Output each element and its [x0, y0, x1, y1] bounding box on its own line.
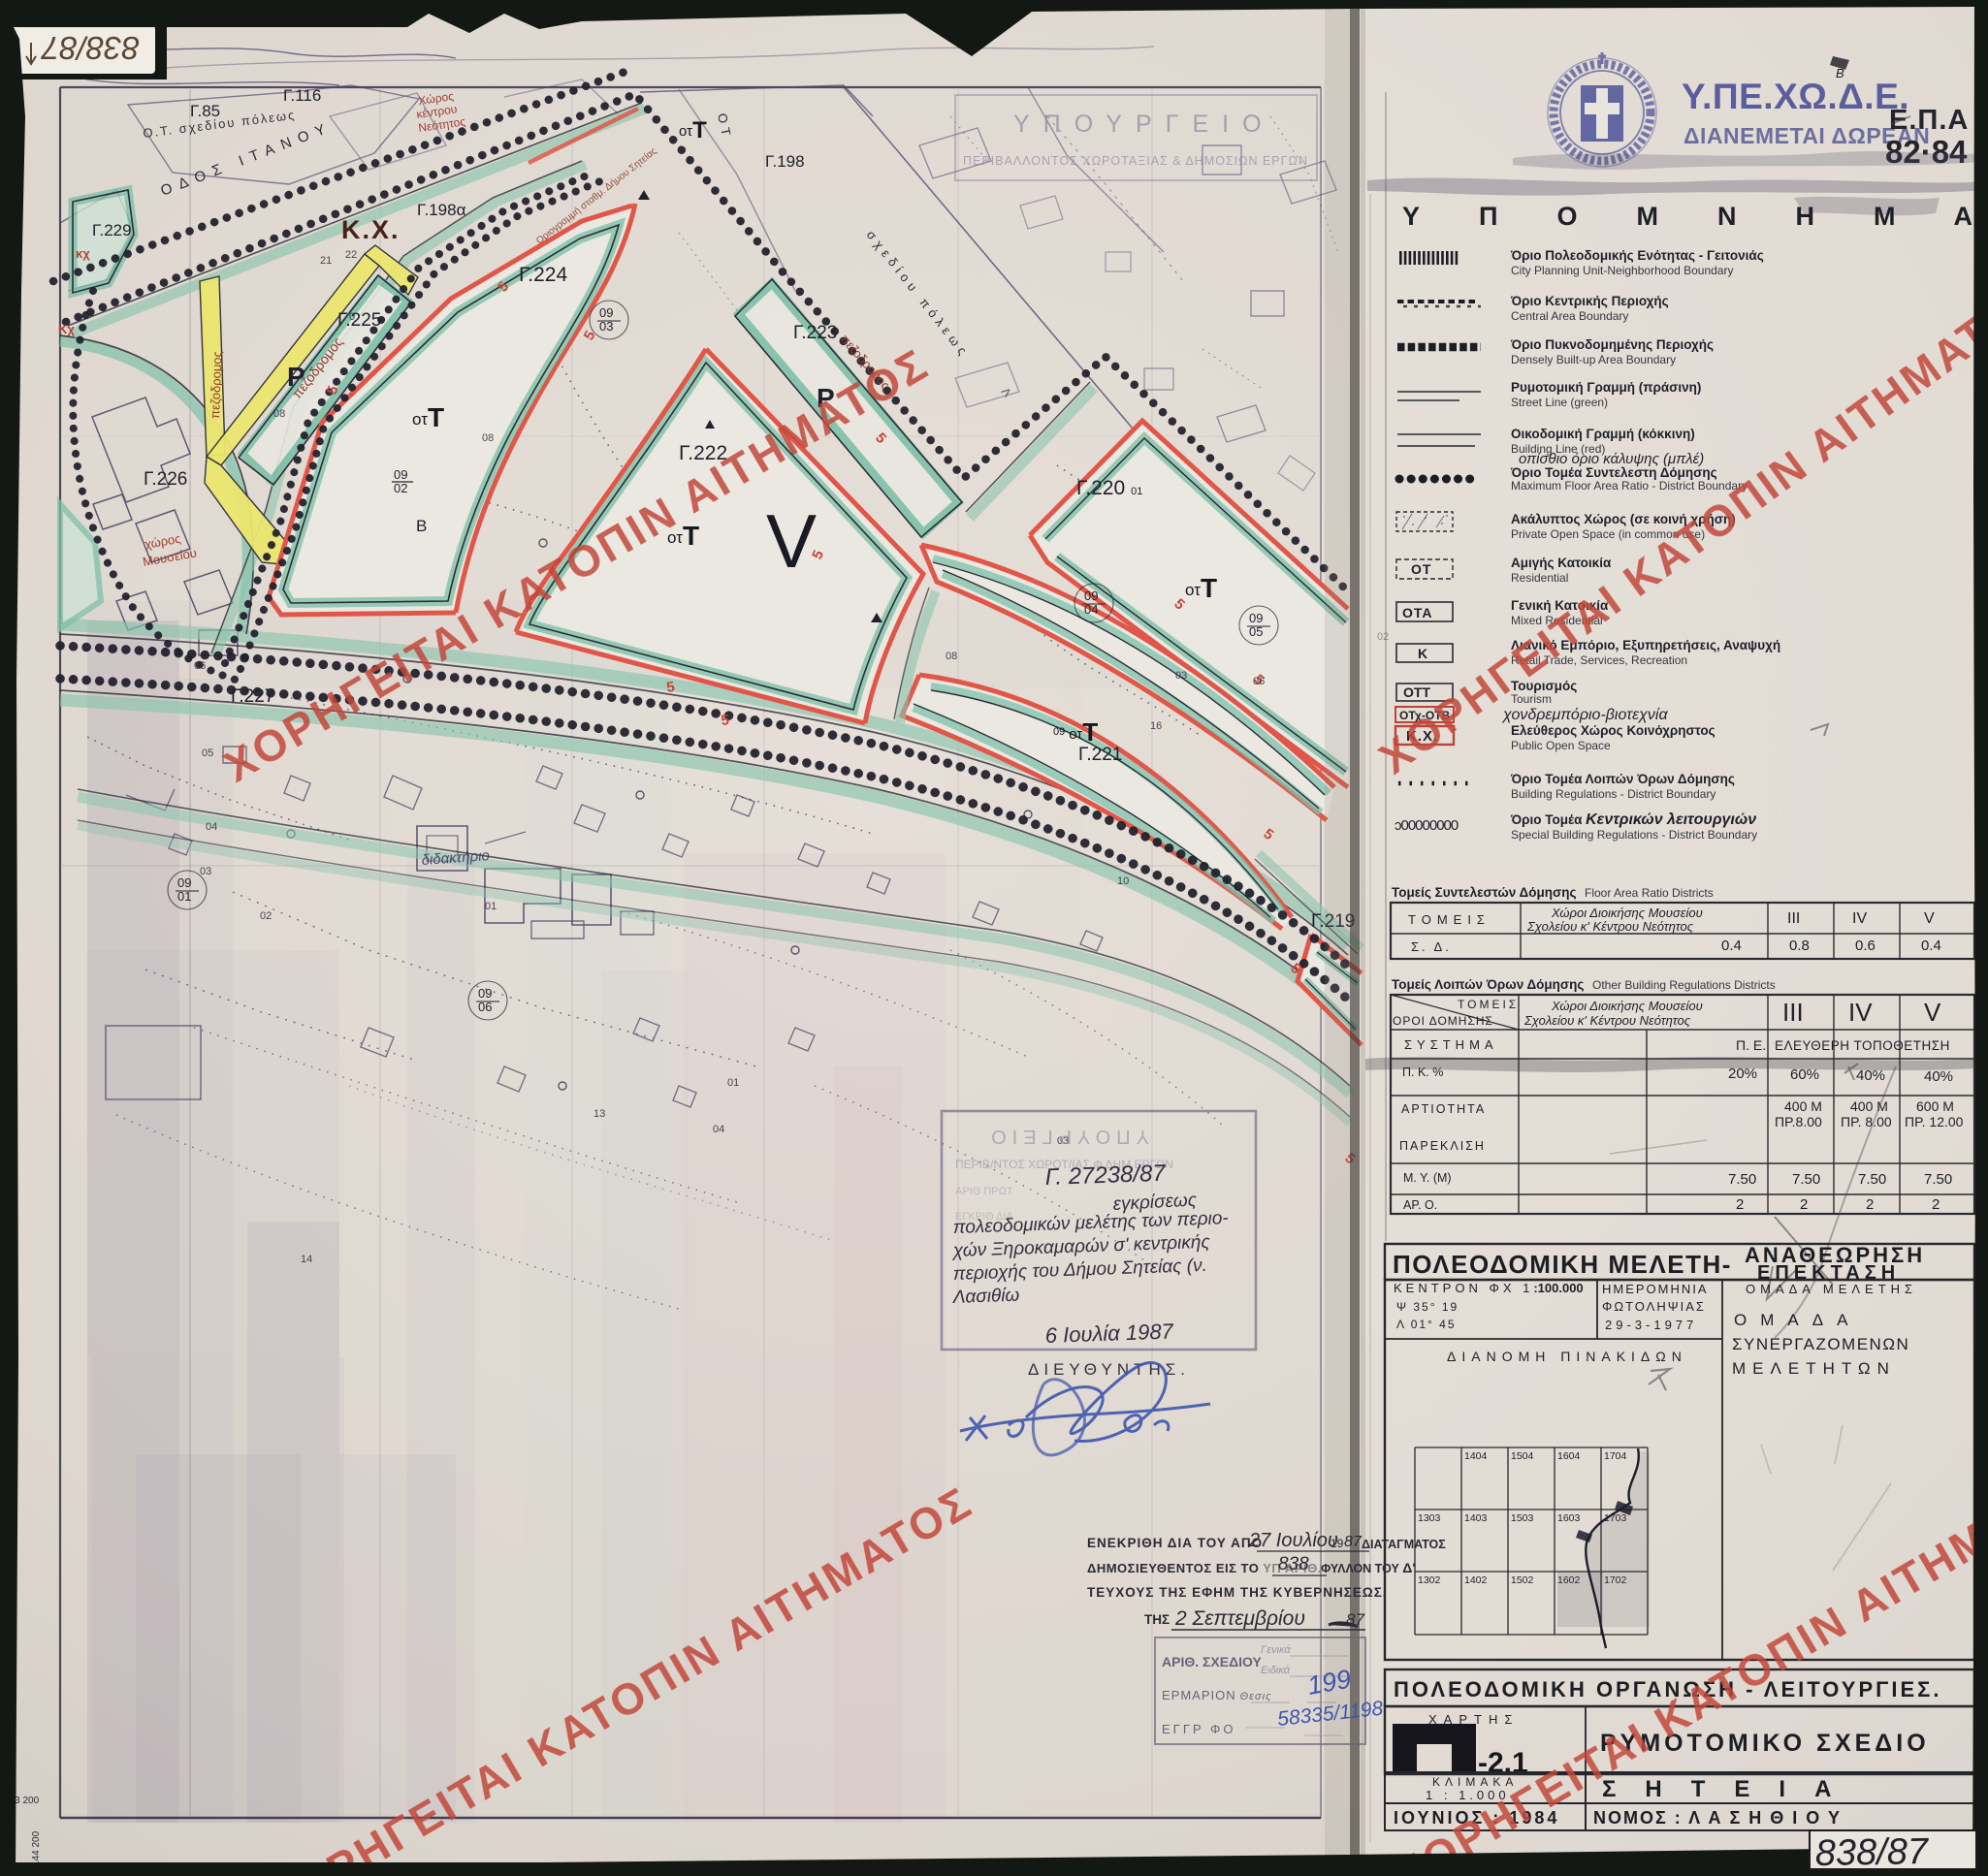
- svg-text:27 Ιουλίου: 27 Ιουλίου: [1248, 1530, 1338, 1551]
- svg-text:Υ.ΠΕ.ΧΩ.Δ.Ε.: Υ.ΠΕ.ΧΩ.Δ.Ε.: [1682, 77, 1909, 116]
- svg-text:87: 87: [1344, 1534, 1363, 1550]
- svg-text:κχ: κχ: [76, 246, 90, 261]
- svg-text:ΔΙΑΝΟΜΗ ΠΙΝΑΚΙΔΩΝ: ΔΙΑΝΟΜΗ ΠΙΝΑΚΙΔΩΝ: [1447, 1349, 1687, 1364]
- svg-text:Γ.198α: Γ.198α: [417, 201, 466, 219]
- svg-text:ΑΡ. Ο.: ΑΡ. Ο.: [1403, 1198, 1437, 1212]
- svg-text:ΣΗΤΕΙΑ: ΣΗΤΕΙΑ: [1602, 1776, 1860, 1802]
- svg-text:ΚΛΙΜΑΚΑ: ΚΛΙΜΑΚΑ: [1432, 1775, 1518, 1789]
- svg-text:0.4: 0.4: [1921, 938, 1941, 954]
- svg-text:2: 2: [1932, 1196, 1940, 1213]
- svg-text:ΕΝΕΚΡΙΘΗ ΔΙΑ ΤΟΥ ΑΠΟ: ΕΝΕΚΡΙΘΗ ΔΙΑ ΤΟΥ ΑΠΟ: [1087, 1536, 1263, 1550]
- svg-text:1704: 1704: [1604, 1450, 1627, 1462]
- svg-text:Σ. Δ.: Σ. Δ.: [1411, 939, 1452, 954]
- svg-text:Building Regulations - Distric: Building Regulations - District Boundary: [1511, 787, 1715, 801]
- svg-text:Οικοδομική Γραμμή (κόκκινη): Οικοδομική Γραμμή (κόκκινη): [1511, 427, 1695, 441]
- svg-text:ΗΜΕΡΟΜΗΝΙΑ: ΗΜΕΡΟΜΗΝΙΑ: [1602, 1282, 1709, 1296]
- svg-text:29-3-1977: 29-3-1977: [1605, 1318, 1697, 1332]
- svg-text:Κ.Χ.: Κ.Χ.: [341, 215, 401, 244]
- svg-text:Τομείς Συντελεστών Δόμησης: Τομείς Συντελεστών Δόμησης: [1392, 885, 1577, 900]
- svg-text:Public Open Space: Public Open Space: [1511, 739, 1611, 752]
- svg-text:ΟΜΑΔΑ: ΟΜΑΔΑ: [1734, 1311, 1861, 1329]
- svg-text:Other Building Regulations Dis: Other Building Regulations Districts: [1592, 978, 1776, 992]
- svg-text:ΦΥΛΛΟΝ ΤΟΥ Δ': ΦΥΛΛΟΝ ΤΟΥ Δ': [1321, 1560, 1416, 1575]
- svg-text:21: 21: [320, 255, 332, 267]
- svg-text:Γ.229: Γ.229: [92, 221, 132, 239]
- svg-text:6 Ιουλία 1987: 6 Ιουλία 1987: [1044, 1319, 1174, 1348]
- svg-text:Γ.223: Γ.223: [793, 323, 837, 343]
- svg-text:ΠΑΡΕΚΛΙΣΗ: ΠΑΡΕΚΛΙΣΗ: [1399, 1139, 1486, 1153]
- svg-text:400 Μ: 400 Μ: [1784, 1098, 1822, 1114]
- svg-text:2: 2: [1736, 1196, 1744, 1213]
- svg-text:1604: 1604: [1557, 1450, 1581, 1462]
- svg-text:Street Line (green): Street Line (green): [1511, 396, 1608, 409]
- svg-text:Β: Β: [1836, 66, 1844, 80]
- svg-text:7.50: 7.50: [1792, 1171, 1820, 1188]
- svg-text:14: 14: [301, 1254, 312, 1265]
- svg-text:Όριο Τομέα Συντελεστη Δόμησης: Όριο Τομέα Συντελεστη Δόμησης: [1510, 465, 1717, 480]
- svg-text:ΣΥΣΤΗΜΑ: ΣΥΣΤΗΜΑ: [1404, 1037, 1498, 1052]
- svg-text:V: V: [766, 498, 817, 584]
- svg-text:ΙΙΙ: ΙΙΙ: [1787, 910, 1800, 927]
- svg-text:01: 01: [727, 1077, 739, 1089]
- svg-text:ΔΙΑΤΑΓΜΑΤΟΣ: ΔΙΑΤΑΓΜΑΤΟΣ: [1362, 1538, 1446, 1551]
- svg-text:08: 08: [482, 432, 494, 444]
- svg-text:ΤΕΥΧΟΥΣ ΤΗΣ ΕΦΗΜ ΤΗΣ ΚΥΒΕΡΝΗΣ: ΤΕΥΧΟΥΣ ΤΗΣ ΕΦΗΜ ΤΗΣ ΚΥΒΕΡΝΗΣΕΩΣ.: [1087, 1585, 1388, 1600]
- svg-text:06: 06: [194, 660, 206, 672]
- svg-text:08: 08: [273, 408, 285, 420]
- svg-text:05: 05: [202, 747, 213, 759]
- svg-text:Χώροι Διοικήσης Μουσείου: Χώροι Διοικήσης Μουσείου: [1551, 999, 1703, 1013]
- svg-text:09: 09: [1084, 588, 1098, 603]
- svg-text:Special Building Regulations -: Special Building Regulations - District …: [1511, 828, 1757, 842]
- svg-text:ΙV: ΙV: [1848, 998, 1873, 1027]
- svg-text:40%: 40%: [1924, 1068, 1953, 1085]
- svg-text:04: 04: [206, 821, 217, 833]
- svg-text:ΚΕΝΤΡΟΝ ΦΧ 1:100.000: ΚΕΝΤΡΟΝ ΦΧ 1:100.000: [1394, 1281, 1584, 1295]
- svg-text:ΥΠΟΥΡΓΕΙΟ: ΥΠΟΥΡΓΕΙΟ: [985, 1126, 1149, 1147]
- svg-text:ΠΡ. 12.00: ΠΡ. 12.00: [1905, 1114, 1964, 1129]
- svg-text:City Planning Unit-Neighborhoo: City Planning Unit-Neighborhood Boundary: [1511, 264, 1733, 277]
- svg-text:02: 02: [260, 910, 272, 922]
- svg-text:V: V: [1924, 910, 1935, 927]
- svg-text:04: 04: [713, 1124, 724, 1135]
- svg-text:7.50: 7.50: [1858, 1171, 1886, 1188]
- svg-text:ΕΛΕΥΘΕΡΗ ΤΟΠΟΘΕΤΗΣΗ: ΕΛΕΥΘΕΡΗ ΤΟΠΟΘΕΤΗΣΗ: [1775, 1038, 1950, 1053]
- svg-text:ΟΤ: ΟΤ: [1411, 561, 1431, 577]
- svg-text:08: 08: [946, 651, 957, 662]
- svg-text:1303: 1303: [1418, 1512, 1441, 1524]
- svg-text:Κχ: Κχ: [58, 322, 75, 336]
- svg-text:ΜΕΛΕΤΗΤΩΝ: ΜΕΛΕΤΗΤΩΝ: [1732, 1359, 1896, 1378]
- svg-text:16: 16: [1150, 720, 1162, 732]
- svg-text:Γ.226: Γ.226: [144, 469, 187, 490]
- svg-text:1404: 1404: [1464, 1450, 1488, 1462]
- svg-text:1603: 1603: [1557, 1512, 1581, 1524]
- svg-text:2 Σεπτεμβρίου: 2 Σεπτεμβρίου: [1174, 1607, 1305, 1630]
- svg-text:09: 09: [599, 305, 613, 320]
- svg-text:Π. Ε.: Π. Ε.: [1736, 1037, 1766, 1053]
- svg-text:1503: 1503: [1511, 1512, 1534, 1524]
- svg-text:ΟΡΟΙ ΔΟΜΗΣΗΣ: ΟΡΟΙ ΔΟΜΗΣΗΣ: [1393, 1014, 1493, 1028]
- svg-text:09: 09: [1249, 611, 1263, 625]
- svg-text:ΤΟΜΕΙΣ: ΤΟΜΕΙΣ: [1458, 998, 1519, 1011]
- svg-text:Γ.225: Γ.225: [337, 310, 381, 331]
- svg-text:B: B: [416, 517, 427, 535]
- svg-text:ΟΤΑ: ΟΤΑ: [1402, 605, 1433, 620]
- svg-text:Ρυμοτομική Γραμμή (πράσινη): Ρυμοτομική Γραμμή (πράσινη): [1511, 380, 1701, 395]
- svg-text:Γ.116: Γ.116: [283, 86, 321, 105]
- svg-text:ΑΡΤΙΟΤΗΤΑ: ΑΡΤΙΟΤΗΤΑ: [1401, 1102, 1486, 1116]
- svg-text:1502: 1502: [1511, 1574, 1534, 1586]
- svg-text:09: 09: [478, 986, 492, 1001]
- svg-text:Όριο Κεντρικής Περιοχής: Όριο Κεντρικής Περιοχής: [1510, 294, 1669, 308]
- svg-text:V: V: [1924, 998, 1941, 1027]
- svg-text:5: 5: [721, 712, 730, 729]
- svg-text:Γ.198: Γ.198: [765, 152, 805, 171]
- svg-text:Ειδικά: Ειδικά: [1261, 1665, 1291, 1676]
- svg-text:ΟΤΤ: ΟΤΤ: [1403, 684, 1430, 700]
- svg-text:Λ 01° 45: Λ 01° 45: [1396, 1318, 1457, 1331]
- svg-text:2: 2: [1866, 1196, 1874, 1213]
- svg-text:ΟΜΑΔΑ ΜΕΛΕΤΗΣ: ΟΜΑΔΑ ΜΕΛΕΤΗΣ: [1746, 1282, 1917, 1296]
- svg-text:Λασιθίω: Λασιθίω: [951, 1286, 1019, 1308]
- svg-text:ΣΥΝΕΡΓΑΖΟΜΕΝΩΝ: ΣΥΝΕΡΓΑΖΟΜΕΝΩΝ: [1732, 1335, 1909, 1353]
- svg-text:19: 19: [1331, 1537, 1344, 1550]
- svg-text:1402: 1402: [1464, 1574, 1488, 1586]
- svg-text:ΙV: ΙV: [1852, 910, 1867, 927]
- svg-text:0.4: 0.4: [1721, 938, 1742, 954]
- svg-text:838/87: 838/87: [40, 30, 140, 66]
- svg-text:χονδρεμπόριο-βιοτεχνία: χονδρεμπόριο-βιοτεχνία: [1501, 707, 1668, 723]
- svg-text:22: 22: [345, 249, 357, 261]
- svg-text:Τομείς Λοιπών Όρων Δόμησης: Τομείς Λοιπών Όρων Δόμησης: [1392, 977, 1584, 992]
- svg-text:Γενικά: Γενικά: [1261, 1644, 1291, 1656]
- svg-text:ΠΕΡΙΒΑΛΛΟΝΤΟΣ ΧΩΡΟΤΑΞΙΑΣ &: ΠΕΡΙΒΑΛΛΟΝΤΟΣ ΧΩΡΟΤΑΞΙΑΣ & ΔΗΜΟΣΙΩΝ ΕΡΓΩ…: [963, 154, 1308, 168]
- svg-text:Residential: Residential: [1511, 571, 1568, 585]
- svg-text:ΕΡΜΑΡΙΟΝΘεσις: ΕΡΜΑΡΙΟΝΘεσις: [1162, 1688, 1271, 1702]
- svg-text:Ψ 35° 19: Ψ 35° 19: [1396, 1300, 1459, 1314]
- svg-text:ΤΟΜΕΙΣ: ΤΟΜΕΙΣ: [1408, 912, 1491, 927]
- svg-text:03: 03: [200, 866, 211, 877]
- svg-text:Γ.224: Γ.224: [519, 264, 567, 286]
- svg-text:1403: 1403: [1464, 1512, 1488, 1524]
- svg-text:ΑΡΙΘ. ΣΧΕΔΙΟΥ: ΑΡΙΘ. ΣΧΕΔΙΟΥ: [1162, 1654, 1263, 1669]
- svg-text:ΝΟΜΟΣ : Λ Α Σ Η Θ Ι Ο Υ: ΝΟΜΟΣ : Λ Α Σ Η Θ Ι Ο Υ: [1593, 1808, 1842, 1828]
- svg-text:ΠΡ. 8.00: ΠΡ. 8.00: [1841, 1114, 1892, 1129]
- svg-text:7.50: 7.50: [1728, 1171, 1756, 1188]
- svg-text:ΥΠΟΥΡΓΕΙΟ: ΥΠΟΥΡΓΕΙΟ: [1013, 111, 1275, 138]
- svg-text:7.50: 7.50: [1924, 1171, 1952, 1188]
- svg-text:0.8: 0.8: [1789, 938, 1810, 954]
- svg-text:ΠΟΛΕΟΔΟΜΙΚΗ ΜΕΛΕΤΗ-: ΠΟΛΕΟΔΟΜΙΚΗ ΜΕΛΕΤΗ-: [1393, 1250, 1732, 1279]
- svg-text:ΤΗΣ: ΤΗΣ: [1144, 1612, 1170, 1627]
- svg-text:2: 2: [1800, 1196, 1808, 1213]
- svg-text:Όριο Πυκνοδομημένης Περιοχής: Όριο Πυκνοδομημένης Περιοχής: [1510, 337, 1714, 352]
- svg-text:Κ: Κ: [1418, 646, 1427, 661]
- svg-text:09: 09: [394, 467, 407, 482]
- svg-text:Σχολείου κ' Κέντρου Νεότητος: Σχολείου κ' Κέντρου Νεότητος: [1523, 1013, 1691, 1028]
- svg-text:06: 06: [1253, 676, 1265, 687]
- svg-text:Central Area Boundary: Central Area Boundary: [1511, 309, 1628, 323]
- svg-text:Υ Π Ο Μ Ν Η Μ Α: Υ Π Ο Μ Ν Η Μ Α: [1402, 202, 1972, 231]
- svg-text:1504: 1504: [1511, 1450, 1534, 1462]
- svg-text:ΕΓΓΡ ΦΟ: ΕΓΓΡ ΦΟ: [1162, 1722, 1236, 1736]
- svg-text:Όριο Πολεοδομικής Ενότητας - Γ: Όριο Πολεοδομικής Ενότητας - Γειτονιάς: [1510, 248, 1764, 263]
- svg-text:ΦΩΤΟΛΗΨΙΑΣ: ΦΩΤΟΛΗΨΙΑΣ: [1602, 1299, 1706, 1314]
- svg-text:Μ. Υ. (Μ): Μ. Υ. (Μ): [1403, 1171, 1452, 1185]
- svg-text:0.6: 0.6: [1855, 938, 1876, 954]
- svg-text:10: 10: [1117, 875, 1129, 887]
- svg-text:Όριο Τομέα Λοιπών Όρων Δόμησης: Όριο Τομέα Λοιπών Όρων Δόμησης: [1510, 772, 1735, 786]
- svg-text:ΑΡΙΘ ΠΡΩΤ: ΑΡΙΘ ΠΡΩΤ: [955, 1186, 1013, 1197]
- svg-text:02: 02: [394, 481, 407, 495]
- svg-text:Σχολείου κ' Κέντρου Νεότητος: Σχολείου κ' Κέντρου Νεότητος: [1526, 919, 1694, 934]
- svg-text:ɔ00000000: ɔ00000000: [1395, 817, 1459, 834]
- svg-text:Όριο Τομέα Κεντρικών λειτουργι: Όριο Τομέα Κεντρικών λειτουργιών: [1510, 811, 1756, 828]
- svg-text:Γ.221: Γ.221: [1078, 745, 1122, 765]
- svg-text:πεζοδρομος: πεζοδρομος: [208, 351, 224, 419]
- svg-text:ΙΙΙ: ΙΙΙ: [1782, 998, 1804, 1027]
- svg-text:Χώροι Διοικήσης Μουσείου: Χώροι Διοικήσης Μουσείου: [1551, 906, 1703, 920]
- svg-text:03: 03: [1175, 670, 1187, 682]
- svg-text:Αμιγής Κατοικία: Αμιγής Κατοικία: [1511, 556, 1612, 570]
- svg-text:Γ.227: Γ.227: [231, 686, 274, 707]
- svg-text:Floor Area Ratio Districts: Floor Area Ratio Districts: [1585, 886, 1714, 900]
- svg-text:13: 13: [593, 1108, 605, 1120]
- svg-text:Ρ: Ρ: [287, 362, 305, 392]
- svg-text:600 Μ: 600 Μ: [1916, 1098, 1954, 1114]
- svg-text:01: 01: [485, 901, 497, 912]
- svg-text:0: 0: [349, 311, 355, 323]
- svg-text:Densely Built-up Area Boundary: Densely Built-up Area Boundary: [1511, 353, 1676, 366]
- svg-text:1302: 1302: [1418, 1574, 1441, 1586]
- svg-text:ΠΡ.8.00: ΠΡ.8.00: [1775, 1114, 1822, 1129]
- svg-text:144 200: 144 200: [31, 1830, 42, 1866]
- svg-text:838/87: 838/87: [1814, 1831, 1930, 1874]
- svg-text:838: 838: [1278, 1554, 1309, 1574]
- svg-text:Maximum Floor Area Ratio - Dis: Maximum Floor Area Ratio - District Boun…: [1511, 479, 1748, 493]
- svg-text:Ελεύθερος Χώρος Κοινόχρηστος: Ελεύθερος Χώρος Κοινόχρηστος: [1511, 723, 1715, 738]
- svg-text:Γ. 27238/87: Γ. 27238/87: [1044, 1161, 1168, 1191]
- svg-text:09: 09: [177, 875, 191, 890]
